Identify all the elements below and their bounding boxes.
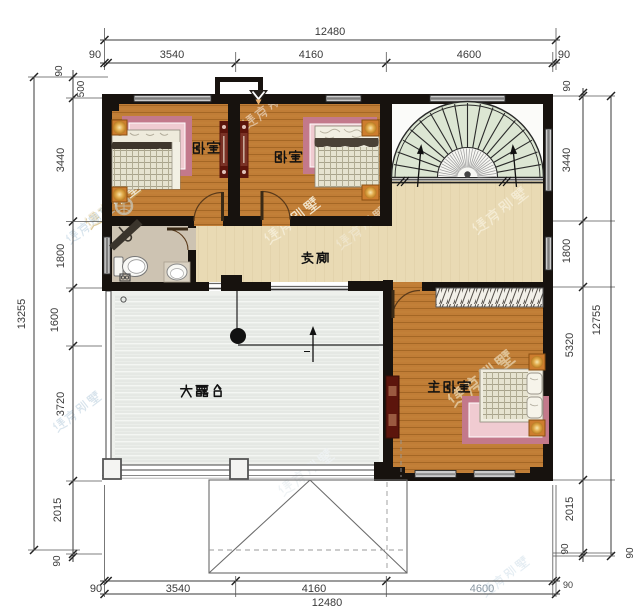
svg-text:1800: 1800 — [55, 244, 67, 268]
svg-text:2015: 2015 — [52, 498, 64, 522]
svg-text:5320: 5320 — [564, 333, 576, 357]
svg-text:3440: 3440 — [561, 148, 573, 172]
svg-text:3440: 3440 — [55, 148, 67, 172]
svg-text:90: 90 — [89, 49, 101, 61]
svg-text:2015: 2015 — [564, 497, 576, 521]
svg-text:3540: 3540 — [160, 49, 184, 61]
svg-text:90: 90 — [52, 555, 63, 567]
svg-text:13255: 13255 — [16, 299, 28, 330]
svg-text:3540: 3540 — [166, 583, 190, 595]
svg-text:4160: 4160 — [302, 583, 326, 595]
svg-text:90: 90 — [625, 547, 636, 559]
svg-text:12755: 12755 — [591, 305, 603, 336]
svg-text:4600: 4600 — [457, 49, 481, 61]
svg-text:12480: 12480 — [312, 597, 343, 608]
svg-text:4160: 4160 — [299, 49, 323, 61]
svg-text:90: 90 — [558, 49, 570, 61]
svg-text:90: 90 — [54, 65, 65, 77]
svg-text:90: 90 — [90, 583, 102, 595]
svg-text:3720: 3720 — [55, 392, 67, 416]
svg-text:1800: 1800 — [561, 239, 573, 263]
svg-text:1600: 1600 — [49, 308, 61, 332]
svg-text:90: 90 — [563, 580, 573, 590]
svg-text:4600: 4600 — [470, 583, 494, 595]
svg-text:90: 90 — [562, 80, 573, 92]
svg-text:12480: 12480 — [315, 26, 346, 38]
svg-text:500: 500 — [76, 80, 87, 97]
